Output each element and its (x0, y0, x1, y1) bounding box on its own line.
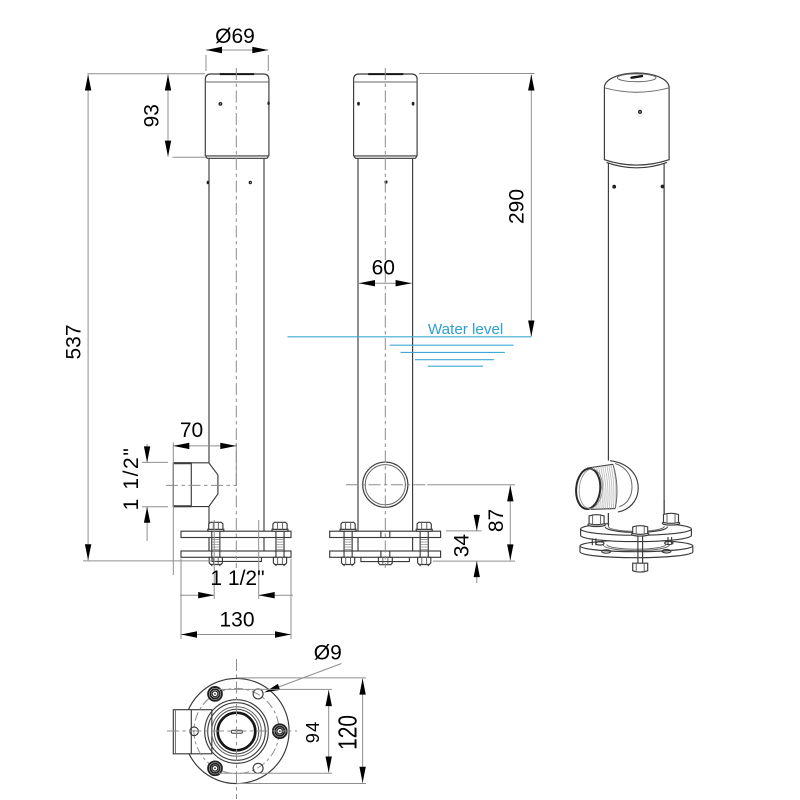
svg-text:130: 130 (219, 608, 254, 631)
svg-text:87: 87 (485, 509, 508, 532)
svg-text:537: 537 (62, 324, 85, 359)
svg-text:290: 290 (505, 189, 528, 224)
svg-text:1 1/2": 1 1/2" (120, 447, 143, 511)
svg-text:94: 94 (302, 721, 323, 744)
svg-text:Water level: Water level (428, 321, 503, 338)
svg-text:93: 93 (141, 104, 164, 127)
svg-text:Ø9: Ø9 (314, 642, 342, 665)
svg-text:120: 120 (334, 715, 362, 750)
svg-text:70: 70 (180, 419, 203, 442)
svg-text:60: 60 (372, 257, 395, 280)
svg-text:34: 34 (450, 534, 473, 558)
svg-text:Ø69: Ø69 (215, 25, 255, 48)
svg-text:1 1/2": 1 1/2" (210, 567, 264, 590)
